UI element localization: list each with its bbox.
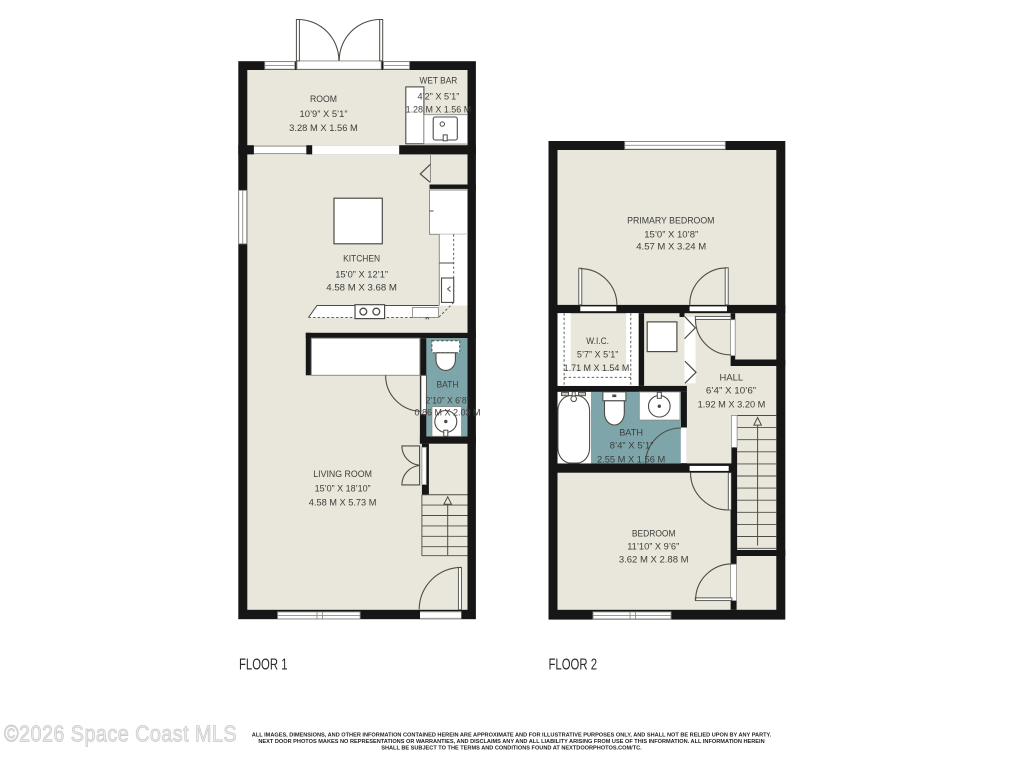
svg-text:LIVING ROOM: LIVING ROOM bbox=[313, 468, 372, 479]
svg-text:15’0” X 18’10”: 15’0” X 18’10” bbox=[315, 483, 371, 494]
svg-text:4.58 M X 5.73 M: 4.58 M X 5.73 M bbox=[309, 497, 377, 508]
svg-text:2.55 M X 1.56 M: 2.55 M X 1.56 M bbox=[597, 453, 665, 464]
svg-text:15’0” X 12’1”: 15’0” X 12’1” bbox=[335, 269, 388, 280]
svg-text:©2026 Space Coast MLS: ©2026 Space Coast MLS bbox=[4, 721, 237, 747]
svg-text:W.I.C.: W.I.C. bbox=[586, 335, 609, 346]
svg-text:3.28 M X 1.56 M: 3.28 M X 1.56 M bbox=[289, 122, 358, 133]
svg-text:FLOOR 1: FLOOR 1 bbox=[239, 656, 288, 673]
svg-text:4.58 M X 3.68 M: 4.58 M X 3.68 M bbox=[326, 282, 397, 293]
svg-text:NEXT DOOR PHOTOS MAKES NO REPR: NEXT DOOR PHOTOS MAKES NO REPRESENTATION… bbox=[258, 739, 764, 745]
svg-text:8’4” X 5’1”: 8’4” X 5’1” bbox=[610, 440, 654, 451]
svg-text:5’7” X 5’1”: 5’7” X 5’1” bbox=[577, 349, 618, 360]
svg-text:HALL: HALL bbox=[720, 372, 744, 383]
svg-text:KITCHEN: KITCHEN bbox=[343, 253, 380, 264]
svg-text:PRIMARY BEDROOM: PRIMARY BEDROOM bbox=[627, 215, 715, 226]
svg-text:BATH: BATH bbox=[619, 427, 643, 438]
svg-text:2’10” X 6’8”: 2’10” X 6’8” bbox=[426, 395, 470, 406]
svg-text:1.71 M X 1.54 M: 1.71 M X 1.54 M bbox=[564, 362, 630, 373]
svg-text:4.57 M X 3.24 M: 4.57 M X 3.24 M bbox=[636, 240, 706, 251]
svg-text:11’10” X 9’6”: 11’10” X 9’6” bbox=[627, 541, 679, 552]
svg-text:1.28 M X 1.56 M: 1.28 M X 1.56 M bbox=[406, 104, 472, 115]
svg-text:BATH: BATH bbox=[437, 379, 459, 390]
svg-text:1.92 M X 3.20 M: 1.92 M X 3.20 M bbox=[698, 398, 766, 409]
svg-text:BEDROOM: BEDROOM bbox=[632, 528, 676, 539]
svg-text:ALL IMAGES, DIMENSIONS, AND OT: ALL IMAGES, DIMENSIONS, AND OTHER INFORM… bbox=[252, 733, 772, 739]
svg-text:4’2” X 5’1”: 4’2” X 5’1” bbox=[418, 91, 460, 102]
svg-text:FLOOR 2: FLOOR 2 bbox=[549, 656, 598, 673]
svg-text:10’9” X 5’1”: 10’9” X 5’1” bbox=[300, 108, 348, 119]
svg-text:3.62 M X 2.88 M: 3.62 M X 2.88 M bbox=[619, 554, 689, 565]
svg-text:ROOM: ROOM bbox=[310, 93, 337, 104]
svg-text:0.86 M X 2.03 M: 0.86 M X 2.03 M bbox=[415, 407, 481, 418]
svg-text:15’0” X 10’8”: 15’0” X 10’8” bbox=[644, 228, 698, 239]
svg-text:SHALL BE SUBJECT TO THE TERMS: SHALL BE SUBJECT TO THE TERMS AND CONDIT… bbox=[381, 746, 642, 752]
svg-text:WET BAR: WET BAR bbox=[420, 75, 458, 86]
svg-text:6’4” X 10’6”: 6’4” X 10’6” bbox=[706, 385, 756, 396]
